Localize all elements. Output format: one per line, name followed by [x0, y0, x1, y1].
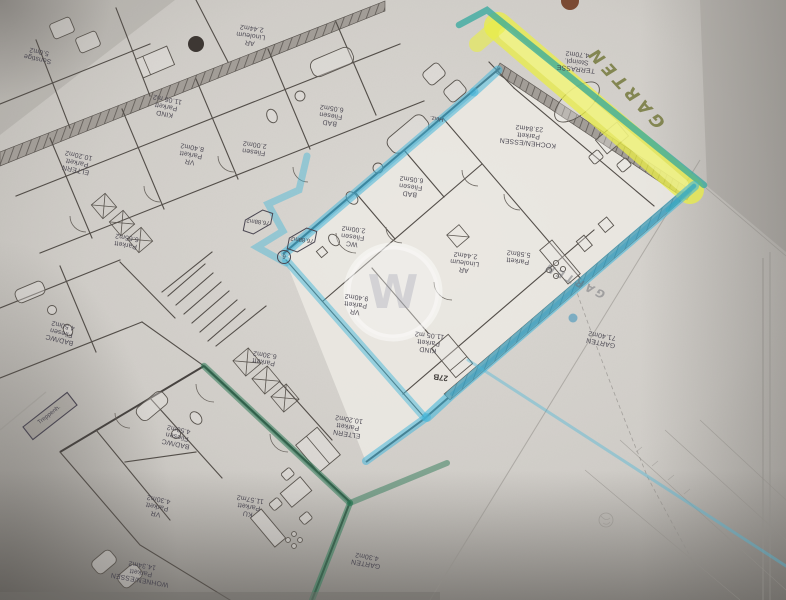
svg-text:ELTERNParkett10.20m2: ELTERNParkett10.20m2: [332, 413, 363, 439]
room-label-parkett-558: Parkett5.58m2: [506, 248, 531, 265]
svg-text:Parkett5.58m2: Parkett5.58m2: [506, 248, 531, 265]
house-number: 27B: [433, 372, 449, 383]
svg-text:27B: 27B: [433, 372, 449, 383]
watermark-letter: W: [368, 265, 419, 319]
room-label-eltern-bottom: ELTERNParkett10.20m2: [332, 413, 363, 439]
floor-plan-photo: W Sonstige5.0m2 KINDParkett11.06 m2 ARLi…: [0, 0, 786, 600]
blue-ink-blob: [569, 314, 578, 323]
watermark: W: [347, 246, 439, 338]
hole-punch-dot: [188, 36, 204, 52]
